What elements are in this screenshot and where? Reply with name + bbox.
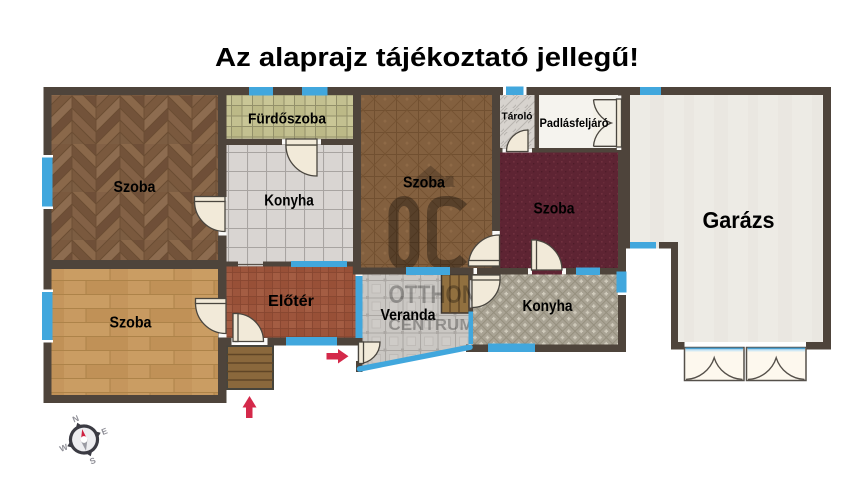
svg-text:Garázs: Garázs [703, 207, 775, 233]
svg-text:Fürdőszoba: Fürdőszoba [248, 111, 327, 128]
svg-text:Szoba: Szoba [110, 315, 152, 332]
svg-text:Veranda: Veranda [381, 307, 436, 324]
svg-text:OTTHON: OTTHON [389, 281, 478, 309]
svg-text:Az alaprajz tájékoztató jelleg: Az alaprajz tájékoztató jellegű! [215, 44, 639, 72]
svg-text:Konyha: Konyha [523, 298, 573, 315]
svg-text:Tároló: Tároló [502, 112, 533, 123]
svg-text:Előtér: Előtér [268, 293, 314, 310]
svg-text:Konyha: Konyha [264, 193, 314, 210]
svg-text:Szoba: Szoba [403, 175, 445, 192]
svg-text:Padlásfeljáró: Padlásfeljáró [540, 118, 609, 130]
svg-text:Szoba: Szoba [114, 179, 156, 196]
svg-text:Szoba: Szoba [534, 201, 575, 218]
